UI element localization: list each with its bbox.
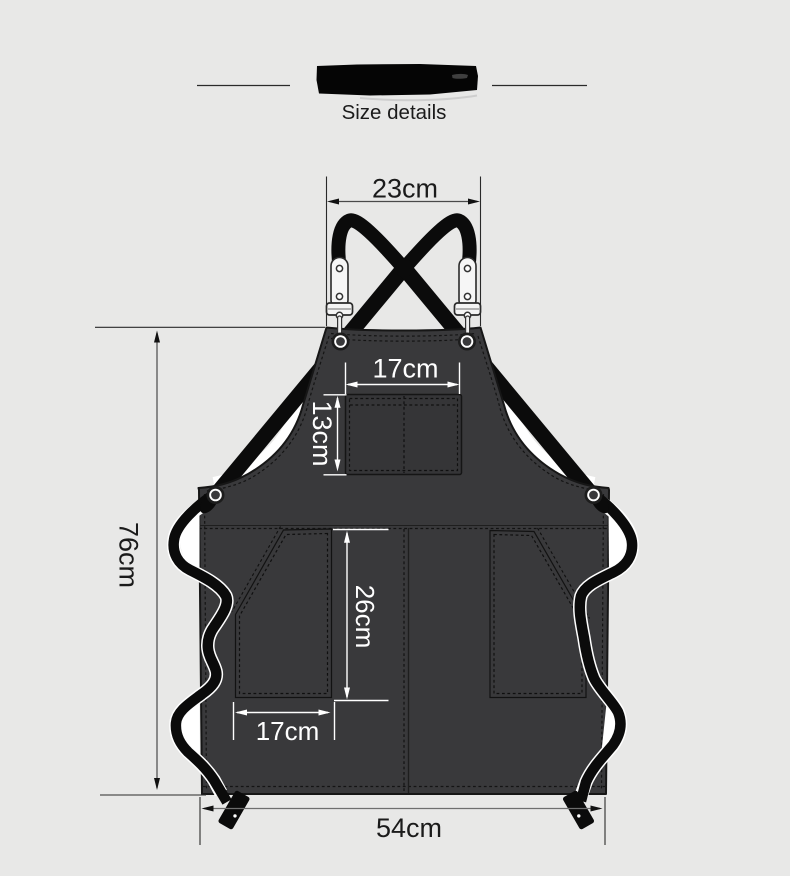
svg-text:76cm: 76cm (114, 522, 144, 588)
svg-text:23cm: 23cm (372, 174, 438, 204)
svg-text:26cm: 26cm (350, 585, 380, 649)
svg-text:Size details: Size details (342, 101, 447, 124)
svg-text:17cm: 17cm (372, 354, 438, 384)
svg-text:54cm: 54cm (376, 813, 442, 843)
svg-text:17cm: 17cm (256, 716, 320, 746)
svg-text:13cm: 13cm (307, 400, 337, 466)
